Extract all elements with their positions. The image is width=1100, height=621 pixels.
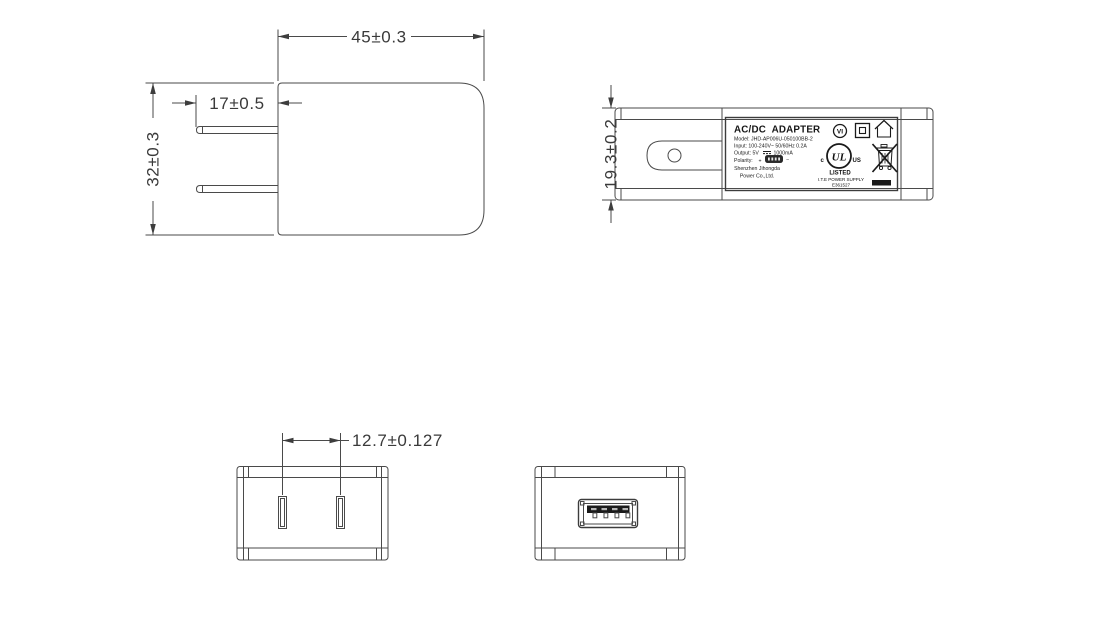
dimension-thickness: 19.3±0.2 bbox=[602, 85, 621, 223]
rating-label: AC/DC ADAPTER Model: JHD-AP006U-050100BB… bbox=[726, 118, 898, 191]
class-ii-icon bbox=[856, 124, 870, 138]
usb-polarity-icon bbox=[766, 156, 783, 163]
dim-width-text: 45±0.3 bbox=[351, 28, 406, 47]
bottom-view: 12.7±0.127 bbox=[237, 431, 443, 560]
drawing-canvas: 45±0.3 17±0.5 32±0.3 bbox=[0, 0, 1100, 621]
dimension-pin-pitch: 12.7±0.127 bbox=[283, 431, 443, 495]
arrowhead bbox=[330, 438, 341, 444]
ul-file-text: E361527 bbox=[832, 183, 851, 188]
dim-pin-length-text: 17±0.5 bbox=[209, 94, 264, 113]
vi-efficiency-icon: VI bbox=[834, 125, 847, 138]
indoor-use-icon bbox=[875, 121, 893, 138]
dc-symbol-icon bbox=[763, 152, 771, 154]
usb-contact bbox=[623, 508, 629, 510]
adapter-body-outline bbox=[278, 83, 484, 235]
ul-listed-icon: UL c US LISTED I.T.E POWER SUPPLY E36152… bbox=[818, 144, 864, 188]
ul-us-text: US bbox=[853, 158, 861, 164]
ac-pin-upper bbox=[197, 127, 279, 134]
front-view: 45±0.3 17±0.5 32±0.3 bbox=[144, 28, 485, 236]
arrowhead bbox=[608, 200, 614, 211]
arrowhead bbox=[185, 100, 196, 106]
technical-drawing: 45±0.3 17±0.5 32±0.3 bbox=[0, 0, 1100, 621]
polarity-plus: + bbox=[759, 159, 762, 165]
polarity-minus: − bbox=[786, 158, 789, 164]
usb-contact bbox=[602, 508, 608, 510]
top-outline bbox=[535, 467, 685, 561]
top-view bbox=[535, 467, 685, 561]
usb-contact bbox=[591, 508, 597, 510]
label-output-prefix: Output: 5V bbox=[734, 151, 759, 157]
label-title: AC/DC ADAPTER bbox=[734, 125, 820, 136]
arrowhead bbox=[278, 34, 289, 40]
weee-bin-icon bbox=[872, 144, 897, 186]
label-company-2: Power Co.,Ltd. bbox=[740, 174, 774, 180]
usb-latch bbox=[615, 513, 619, 518]
usb-contact bbox=[612, 508, 618, 510]
label-model: Model: JHD-AP006U-050100BB-2 bbox=[734, 137, 813, 143]
usb-latch bbox=[593, 513, 597, 518]
arrowhead bbox=[283, 438, 294, 444]
dim-pin-pitch-text: 12.7±0.127 bbox=[352, 431, 443, 450]
arrowhead bbox=[150, 83, 156, 94]
svg-text:VI: VI bbox=[837, 129, 843, 136]
svg-text:UL: UL bbox=[832, 152, 847, 164]
usb-latch bbox=[626, 513, 630, 518]
bottom-outline bbox=[237, 467, 388, 561]
pin-slot-left bbox=[279, 497, 287, 529]
usb-port bbox=[579, 500, 638, 528]
dim-height-text: 32±0.3 bbox=[144, 131, 163, 186]
weee-bar bbox=[872, 180, 891, 186]
dimension-pin-length: 17±0.5 bbox=[172, 94, 302, 127]
arrowhead bbox=[150, 224, 156, 235]
label-input: Input: 100-240V~ 50/60Hz 0.2A bbox=[734, 144, 807, 150]
arrowhead bbox=[278, 100, 289, 106]
ac-blade-side bbox=[647, 141, 722, 170]
ul-category-text: I.T.E POWER SUPPLY bbox=[818, 177, 864, 182]
arrowhead bbox=[473, 34, 484, 40]
usb-latch bbox=[604, 513, 608, 518]
ac-pin-lower bbox=[197, 186, 279, 193]
ul-c-text: c bbox=[821, 158, 825, 164]
ul-listed-text: LISTED bbox=[829, 171, 851, 177]
label-polarity: Polarity: bbox=[734, 158, 753, 164]
arrowhead bbox=[608, 98, 614, 109]
side-view: 19.3±0.2 AC/DC ADAPTER Model: JHD-AP006U… bbox=[602, 85, 934, 223]
dimension-width: 45±0.3 bbox=[278, 28, 484, 82]
label-company-1: Shenzhen Jihongda bbox=[734, 166, 780, 172]
pin-slot-right bbox=[337, 497, 345, 529]
dim-thickness-text: 19.3±0.2 bbox=[602, 119, 621, 190]
